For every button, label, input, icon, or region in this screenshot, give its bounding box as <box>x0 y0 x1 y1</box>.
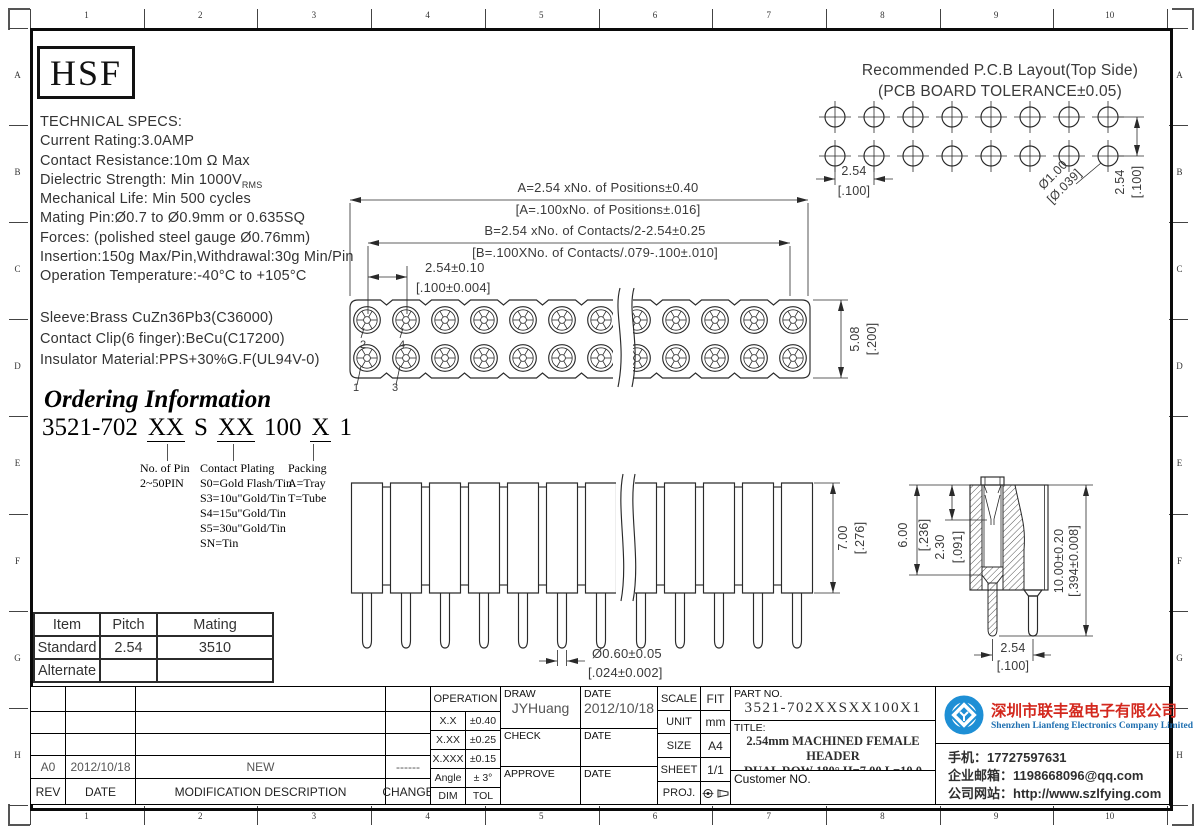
insulator-body <box>782 483 813 593</box>
ruler-row-label: H <box>8 750 27 760</box>
cell-mating <box>157 659 273 682</box>
ordering-plating-legend: Contact Plating S0=Gold Flash/Tin S3=10u… <box>200 461 292 551</box>
insulator-body <box>430 483 461 593</box>
date-header: DATE <box>65 778 136 805</box>
ruler-col-label: 6 <box>599 811 712 821</box>
contact-holes <box>354 307 807 372</box>
solder-pin <box>519 593 528 648</box>
company-name-en: Shenzhen Lianfeng Electronics Company Li… <box>991 721 1193 731</box>
spec-line: Operation Temperature:-40°C to +105°C <box>40 268 354 287</box>
ordering-title: Ordering Information <box>44 386 271 414</box>
change-header: CHANGE <box>385 778 431 805</box>
drawing-title-line1: 2.54mm MACHINED FEMALE HEADER <box>731 734 935 764</box>
ruler-col-label: 4 <box>371 10 484 20</box>
solder-pin <box>676 593 685 648</box>
spec-line: Mating Pin:Ø0.7 to Ø0.9mm or 0.635SQ <box>40 210 354 229</box>
cell-item: Standard <box>34 636 100 659</box>
insulator-body <box>391 483 422 593</box>
cell-pitch <box>100 659 157 682</box>
tolerance-header: OPERATION <box>430 686 501 712</box>
code-pin-count: XX <box>147 414 185 442</box>
tol-value: ± 3° <box>465 768 501 788</box>
mating-table: Item Pitch Mating Standard 2.54 3510 Alt… <box>33 612 274 683</box>
pcb-pitch-v-inch: [.100] <box>1130 166 1144 198</box>
rear-pin <box>1029 596 1038 636</box>
dim-height-mm: 7.00 <box>836 525 850 550</box>
ruler-col-label: 6 <box>599 10 712 20</box>
corner-mark <box>1172 804 1194 826</box>
ruler-col-label: 2 <box>144 10 257 20</box>
rev-change: ------ <box>385 755 431 779</box>
packing-legend-title: Packing <box>288 461 327 476</box>
technical-specs: TECHNICAL SPECS: Current Rating:3.0AMP C… <box>40 114 354 288</box>
packing-option: T=Tube <box>288 491 327 506</box>
check-label: CHECK <box>501 729 580 742</box>
plating-option: S5=30u"Gold/Tin <box>200 521 292 536</box>
ordering-leader <box>313 444 314 461</box>
scale-value: FIT <box>700 686 731 711</box>
cell-pitch: 2.54 <box>100 636 157 659</box>
date-label: DATE <box>581 767 657 780</box>
ruler-tick <box>9 28 28 29</box>
plating-option: S4=15u"Gold/Tin <box>200 506 292 521</box>
solder-pin <box>402 593 411 648</box>
dim-a-mm: A=2.54 xNo. of Positions±0.40 <box>518 180 699 195</box>
plating-option: S0=Gold Flash/Tin <box>200 476 292 491</box>
plating-legend-title: Contact Plating <box>200 461 292 476</box>
ruler-col-label: 9 <box>940 811 1053 821</box>
ruler-col-label: 10 <box>1053 10 1166 20</box>
insulator-body <box>743 483 774 593</box>
tol-value: TOL <box>465 787 501 805</box>
insulator-body <box>508 483 539 593</box>
customer-no-label: Customer NO. <box>731 771 935 786</box>
section-wall-right <box>1003 485 1024 590</box>
dim-pin-dia-mm: Ø0.60±0.05 <box>592 646 662 661</box>
part-number: 3521-702XXSXX100X1 <box>731 700 935 717</box>
pin-legend-line: 2~50PIN <box>140 476 190 491</box>
company-logo-icon <box>942 693 986 737</box>
dim-a-inch: [A=.100xNo. of Positions±.016] <box>516 202 701 217</box>
contact-collar <box>981 477 1004 485</box>
rev-header: REV <box>30 778 66 805</box>
drawing-sheet: 1122334455667788991010AABBCCDDEEFFGGHH H… <box>0 0 1200 832</box>
ruler-col-label: 2 <box>144 811 257 821</box>
ruler-tick <box>9 805 28 806</box>
ruler-col-label: 9 <box>940 10 1053 20</box>
dim-pin-pitch-mm: 2.54 <box>1000 641 1025 655</box>
insulator-body <box>469 483 500 593</box>
solder-pin <box>597 593 606 648</box>
dim-b-inch: [B=.100XNo. of Contacts/.079-.100±.010] <box>472 245 718 260</box>
dim-pitch-inch: [.100±0.004] <box>416 280 491 295</box>
rev-value: A0 <box>30 755 66 779</box>
ruler-tick <box>1167 9 1168 28</box>
material-line: Sleeve:Brass CuZn36Pb3(C36000) <box>40 310 320 331</box>
company-phone: 手机：17727597631 <box>948 749 1169 767</box>
ruler-col-label: 3 <box>257 811 370 821</box>
draw-name: JYHuang <box>501 700 580 716</box>
solder-pin <box>793 593 802 648</box>
hsf-logo-text: HSF <box>50 52 122 94</box>
spec-line: Insertion:150g Max/Pin,Withdrawal:30g Mi… <box>40 249 354 268</box>
ruler-col-label: 4 <box>371 811 484 821</box>
packing-option: A=Tray <box>288 476 327 491</box>
corner-mark <box>8 8 30 30</box>
ordering-pin-legend: No. of Pin 2~50PIN <box>140 461 190 491</box>
solder-pin <box>715 593 724 648</box>
dim-pitch-mm: 2.54±0.10 <box>425 260 485 275</box>
pin-number-4: 4 <box>399 339 405 351</box>
spec-line-dielectric: Dielectric Strength: Min 1000VRMS <box>40 172 354 191</box>
ruler-tick <box>9 125 28 126</box>
ruler-row-label: E <box>8 458 27 468</box>
contact-base <box>982 567 1003 583</box>
ordering-packing-legend: Packing A=Tray T=Tube <box>288 461 327 506</box>
dim-b-mm: B=2.54 xNo. of Contacts/2-2.54±0.25 <box>484 223 705 238</box>
ruler-row-label: A <box>8 70 27 80</box>
sheet-label: SHEET <box>657 757 701 782</box>
company-name-cn: 深圳市联丰盈电子有限公司 <box>991 699 1193 721</box>
dim-row-span-inch: [.200] <box>865 323 879 355</box>
unit-value: mm <box>700 710 731 734</box>
ruler-col-label: 1 <box>30 811 143 821</box>
tol-label: X.X <box>430 711 466 731</box>
rev-date: 2012/10/18 <box>65 755 136 779</box>
solder-pin <box>363 593 372 648</box>
ruler-tick <box>9 611 28 612</box>
entry-chamfer <box>984 485 1001 493</box>
pcb-title: Recommended P.C.B Layout(Top Side) <box>862 62 1138 79</box>
code-1: 1 <box>340 414 353 441</box>
solder-pin <box>558 593 567 648</box>
dim-row-span-mm: 5.08 <box>848 326 862 351</box>
tol-label: X.XXX <box>430 749 466 769</box>
date-label: DATE <box>581 729 657 742</box>
spec-line: TECHNICAL SPECS: <box>40 114 354 133</box>
pin-number-1: 1 <box>353 382 359 394</box>
solder-pin <box>441 593 450 648</box>
code-packing: X <box>310 414 330 442</box>
title-label: TITLE: <box>731 721 935 734</box>
pcb-pitch-h: 2.54 <box>841 164 866 178</box>
ruler-col-label: 1 <box>30 10 143 20</box>
table-row: Standard 2.54 3510 <box>34 636 273 659</box>
corner-mark <box>8 804 30 826</box>
dim-pin-pitch-inch: [.100] <box>997 659 1029 673</box>
insulator-body <box>704 483 735 593</box>
pin-number-2: 2 <box>360 339 366 351</box>
contact-fingers <box>985 495 1000 525</box>
ruler-col-label: 3 <box>257 10 370 20</box>
ordering-leader <box>167 444 168 461</box>
ordering-code: 3521-702XXSXX100X1 <box>42 414 361 442</box>
ruler-tick <box>9 416 28 417</box>
dim-total-mm: 10.00±0.20 <box>1052 529 1066 593</box>
draw-date: 2012/10/18 <box>581 700 657 716</box>
pcb-pitch-v: 2.54 <box>1113 169 1127 194</box>
ruler-tick <box>9 708 28 709</box>
ruler-row-label: B <box>8 167 27 177</box>
ruler-col-label: 7 <box>712 10 825 20</box>
tol-label: DIM <box>430 787 466 805</box>
part-no-label: PART NO. <box>731 687 935 700</box>
solder-pin <box>480 593 489 648</box>
code-100: 100 <box>264 414 302 441</box>
company-email: 企业邮箱：1198668096@qq.com <box>948 767 1169 785</box>
dim-depth-inch: [.236] <box>917 519 931 551</box>
size-value: A4 <box>700 733 731 758</box>
ruler-col-label: 5 <box>485 811 598 821</box>
approve-label: APPROVE <box>501 767 580 780</box>
hsf-logo: HSF <box>37 46 135 99</box>
table-row: Alternate <box>34 659 273 682</box>
material-line: Insulator Material:PPS+30%G.F(UL94V-0) <box>40 352 320 373</box>
ruler-row-label: F <box>8 556 27 566</box>
dim-depth-mm: 6.00 <box>896 522 910 547</box>
solder-pin <box>754 593 763 648</box>
solder-pin <box>637 593 646 648</box>
material-line: Contact Clip(6 finger):BeCu(C17200) <box>40 331 320 352</box>
dim-total-inch: [.394±0.008] <box>1067 525 1081 597</box>
pcb-holes <box>819 101 1124 172</box>
insulator-body <box>352 483 383 593</box>
modification-header: MODIFICATION DESCRIPTION <box>135 778 386 805</box>
col-header: Item <box>34 613 100 636</box>
pin-legend-title: No. of Pin <box>140 461 190 476</box>
tol-value: ±0.15 <box>465 749 501 769</box>
table-row: Item Pitch Mating <box>34 613 273 636</box>
connector-body-outline <box>350 300 810 378</box>
corner-mark <box>1172 8 1194 30</box>
insulator-body <box>547 483 578 593</box>
materials-specs: Sleeve:Brass CuZn36Pb3(C36000) Contact C… <box>40 310 320 373</box>
dielectric-sub: RMS <box>242 180 263 190</box>
ruler-tick <box>9 319 28 320</box>
ruler-row-label: C <box>8 264 27 274</box>
dim-entry-mm: 2.30 <box>933 534 947 559</box>
plating-option: S3=10u"Gold/Tin <box>200 491 292 506</box>
tol-value: ±0.25 <box>465 730 501 750</box>
insulator-body <box>586 483 617 593</box>
company-website: 公司网站：http://www.szlfying.com <box>948 785 1169 803</box>
dielectric-text: Dielectric Strength: Min 1000V <box>40 172 242 188</box>
ruler-col-label: 7 <box>712 811 825 821</box>
code-prefix: 3521-702 <box>42 414 138 441</box>
rev-description: NEW <box>135 755 386 779</box>
tol-label: Angle <box>430 768 466 788</box>
dim-pin-dia-inch: [.024±0.002] <box>588 665 663 680</box>
pin-shoulder <box>1024 590 1042 596</box>
plating-option: SN=Tin <box>200 536 292 551</box>
ruler-col-label: 5 <box>485 10 598 20</box>
title-block: A0 2012/10/18 NEW ------ REV DATE MODIFI… <box>30 686 1170 805</box>
spec-line: Forces: (polished steel gauge Ø0.76mm) <box>40 230 354 249</box>
projection-symbol <box>700 781 731 805</box>
ruler-row-label: D <box>8 361 27 371</box>
cell-item: Alternate <box>34 659 100 682</box>
ruler-col-label: 10 <box>1053 811 1166 821</box>
ruler-col-label: 8 <box>826 10 939 20</box>
sheet-value: 1/1 <box>700 757 731 782</box>
ordering-leader <box>233 444 234 461</box>
scale-label: SCALE <box>657 686 701 711</box>
spec-line: Mechanical Life: Min 500 cycles <box>40 191 354 210</box>
draw-label: DRAW <box>501 687 580 700</box>
dim-height-inch: [.276] <box>853 522 867 554</box>
insulator-body <box>665 483 696 593</box>
connector-side-view: 7.00 [.276] Ø0.60±0.05 [.024±0.002] <box>330 468 890 688</box>
code-s: S <box>194 414 208 441</box>
section-pin <box>988 583 997 636</box>
pin-number-3: 3 <box>392 382 398 394</box>
first-angle-projection-icon <box>702 787 730 800</box>
size-label: SIZE <box>657 733 701 758</box>
tol-value: ±0.40 <box>465 711 501 731</box>
code-plating: XX <box>217 414 255 442</box>
unit-label: UNIT <box>657 710 701 734</box>
cell-mating: 3510 <box>157 636 273 659</box>
ruler-tick <box>9 514 28 515</box>
dim-entry-inch: [.091] <box>951 531 965 563</box>
spec-line: Current Rating:3.0AMP <box>40 133 354 152</box>
date-label: DATE <box>581 687 657 700</box>
side-view-bodies <box>352 483 813 648</box>
spec-line: Contact Resistance:10m Ω Max <box>40 153 354 172</box>
ruler-col-label: 8 <box>826 811 939 821</box>
connector-top-view: A=2.54 xNo. of Positions±0.40 [A=.100xNo… <box>340 178 900 396</box>
col-header: Mating <box>157 613 273 636</box>
connector-section-view: 6.00 [.236] 2.30 [.091] 10.00±0.20 [.394… <box>895 455 1195 695</box>
projection-label: PROJ. <box>657 781 701 805</box>
pcb-tolerance: (PCB BOARD TOLERANCE±0.05) <box>878 83 1122 100</box>
section-wall-left <box>970 485 982 590</box>
ruler-row-label: G <box>8 653 27 663</box>
col-header: Pitch <box>100 613 157 636</box>
ruler-tick <box>9 222 28 223</box>
tol-label: X.XX <box>430 730 466 750</box>
